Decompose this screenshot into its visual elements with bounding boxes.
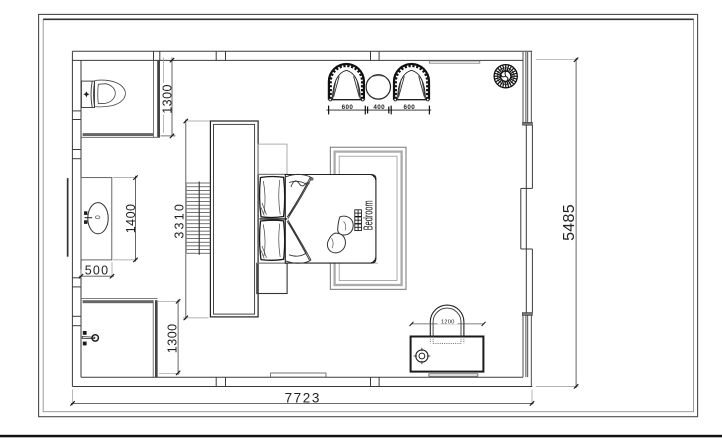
svg-text:600: 600 bbox=[342, 104, 354, 111]
svg-text:400: 400 bbox=[373, 104, 385, 111]
svg-text:7723: 7723 bbox=[285, 390, 321, 405]
svg-text:3310: 3310 bbox=[172, 202, 186, 239]
svg-text:600: 600 bbox=[404, 104, 416, 111]
svg-text:1400: 1400 bbox=[124, 203, 138, 233]
svg-text:1200: 1200 bbox=[441, 319, 455, 325]
svg-text:500: 500 bbox=[85, 264, 109, 278]
svg-text:5485: 5485 bbox=[561, 204, 578, 241]
svg-text:Bedroom: Bedroom bbox=[360, 200, 375, 230]
svg-text:1300: 1300 bbox=[161, 84, 175, 114]
svg-text:1300: 1300 bbox=[165, 323, 179, 353]
